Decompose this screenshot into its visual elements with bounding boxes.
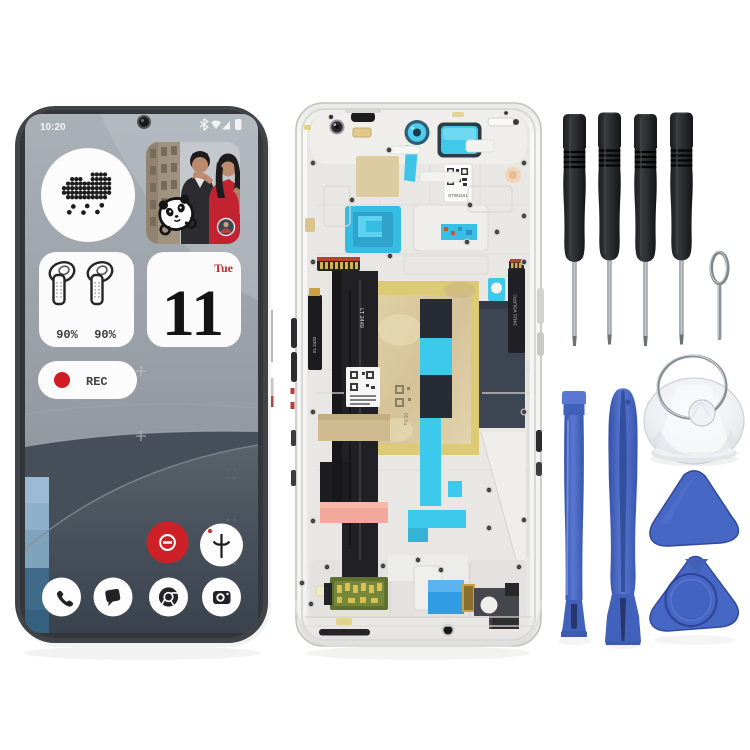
svg-text:90%: 90% <box>56 328 78 342</box>
svg-text:10:20: 10:20 <box>40 122 66 133</box>
svg-text:24111 VOLFPC: 24111 VOLFPC <box>513 294 518 326</box>
svg-text:REC: REC <box>86 375 108 389</box>
svg-text:XL 2432: XL 2432 <box>312 336 317 353</box>
svg-text:05 0u: 05 0u <box>402 413 408 426</box>
svg-text:90%: 90% <box>94 328 116 342</box>
svg-text:11: 11 <box>162 277 224 350</box>
svg-text:Tue: Tue <box>214 261 234 275</box>
svg-text:LT 2449: LT 2449 <box>358 308 364 328</box>
svg-text:NT082161: NT082161 <box>448 193 468 198</box>
